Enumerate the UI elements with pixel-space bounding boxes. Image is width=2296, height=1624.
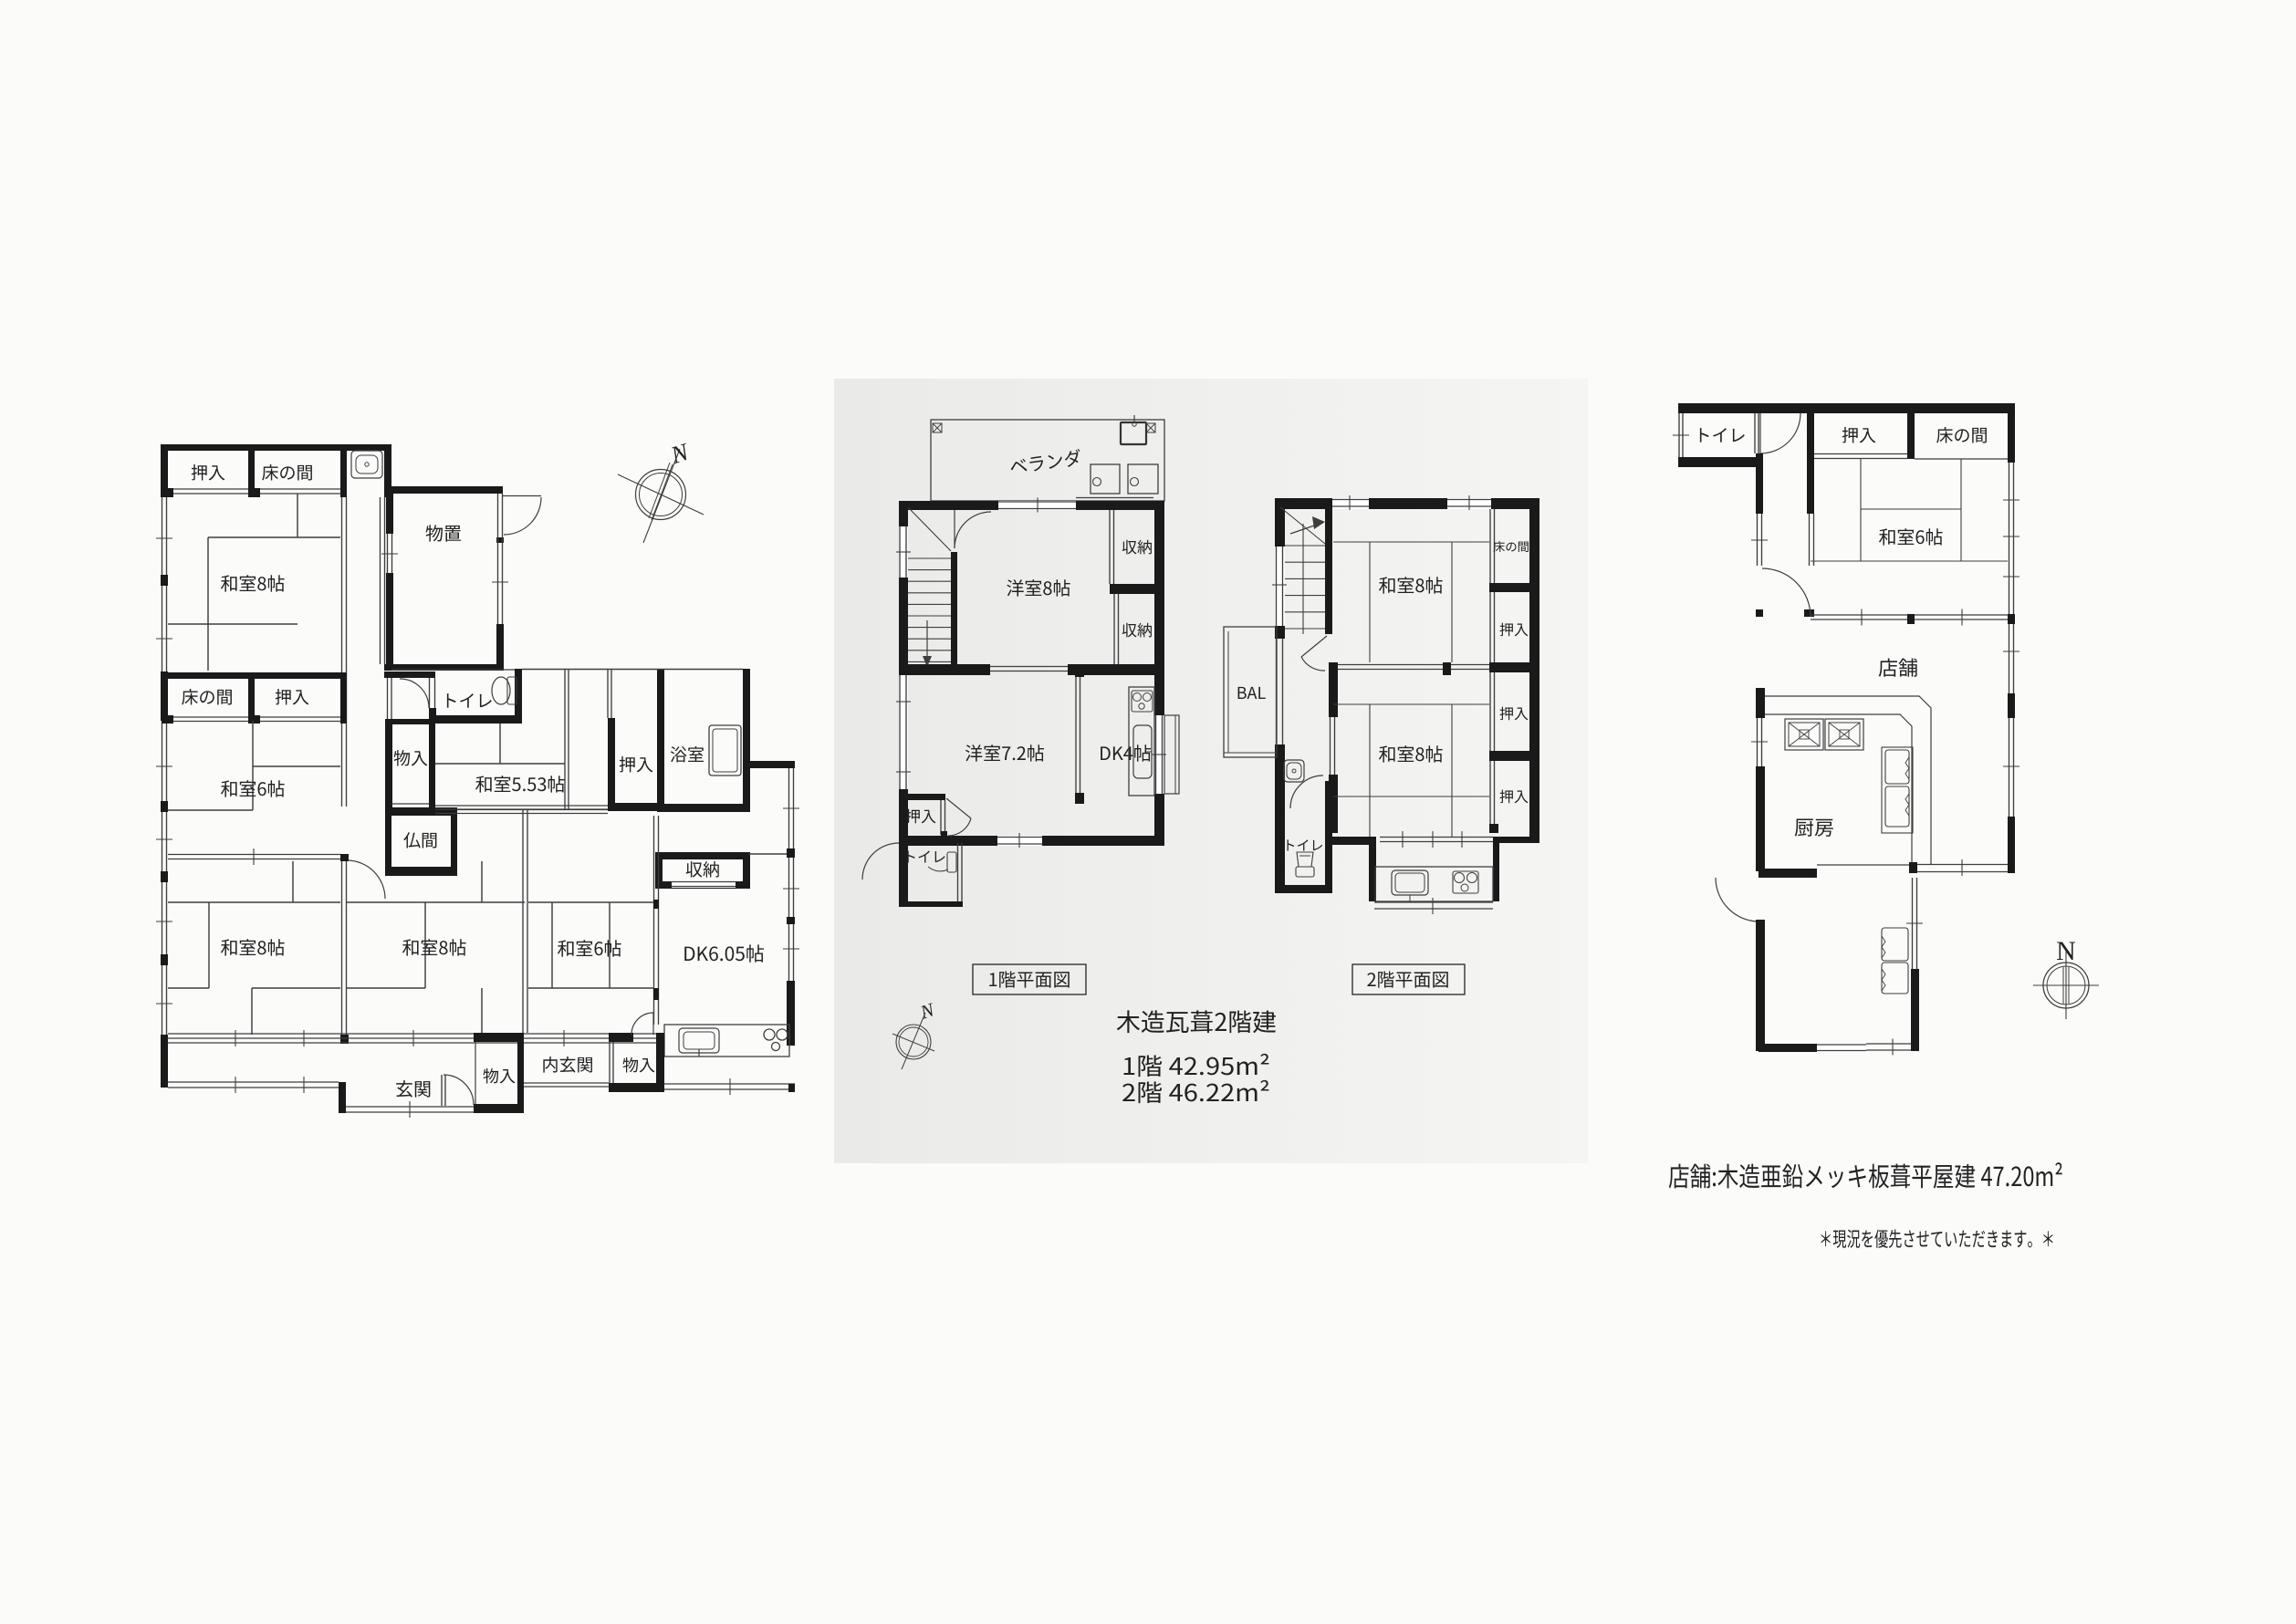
svg-text:和室8帖: 和室8帖: [220, 933, 285, 960]
svg-text:和室6帖: 和室6帖: [220, 775, 285, 801]
svg-text:BAL: BAL: [1237, 681, 1267, 704]
svg-text:DK6.05帖: DK6.05帖: [683, 940, 765, 967]
svg-text:和室8帖: 和室8帖: [1378, 571, 1443, 598]
svg-text:DK4帖: DK4帖: [1099, 739, 1152, 765]
svg-text:トイレ: トイレ: [1694, 422, 1746, 447]
svg-text:2階 46.22m²: 2階 46.22m²: [1122, 1075, 1270, 1109]
svg-text:トイレ: トイレ: [903, 845, 946, 867]
svg-text:玄関: 玄関: [395, 1075, 432, 1101]
svg-text:床の間: 床の間: [181, 684, 233, 709]
svg-text:押入: 押入: [275, 684, 309, 709]
svg-text:1階平面図: 1階平面図: [987, 965, 1070, 992]
svg-text:物入: 物入: [393, 745, 428, 770]
svg-text:トイレ: トイレ: [441, 688, 493, 713]
svg-text:押入: 押入: [1499, 785, 1529, 807]
svg-text:押入: 押入: [191, 460, 225, 484]
svg-text:浴室: 浴室: [670, 742, 704, 766]
svg-text:押入: 押入: [1499, 618, 1529, 640]
svg-text:床の間: 床の間: [261, 460, 313, 484]
svg-text:N: N: [2056, 936, 2076, 966]
svg-text:和室8帖: 和室8帖: [402, 933, 466, 960]
svg-text:和室8帖: 和室8帖: [220, 569, 285, 596]
svg-text:店舗:木造亜鉛メッキ板葺平屋建 47.20m²: 店舗:木造亜鉛メッキ板葺平屋建 47.20m²: [1668, 1156, 2063, 1194]
svg-text:木造瓦葺2階建: 木造瓦葺2階建: [1116, 1003, 1277, 1038]
svg-text:収納: 収納: [685, 857, 720, 881]
svg-text:押入: 押入: [905, 804, 936, 827]
svg-text:収納: 収納: [1122, 618, 1153, 640]
svg-text:内玄関: 内玄関: [541, 1052, 593, 1077]
svg-text:洋室7.2帖: 洋室7.2帖: [965, 739, 1045, 765]
svg-text:床の間: 床の間: [1936, 422, 1988, 447]
svg-text:和室6帖: 和室6帖: [1878, 523, 1943, 549]
svg-text:収納: 収納: [1122, 535, 1153, 557]
svg-text:物置: 物置: [425, 519, 462, 546]
svg-text:和室5.53帖: 和室5.53帖: [475, 770, 566, 796]
svg-text:物入: 物入: [622, 1053, 655, 1077]
svg-text:押入: 押入: [619, 752, 653, 776]
svg-text:洋室8帖: 洋室8帖: [1006, 574, 1070, 600]
svg-text:和室8帖: 和室8帖: [1378, 740, 1443, 766]
svg-text:仏間: 仏間: [403, 828, 438, 852]
svg-text:＊現況を優先させていただきます。＊: ＊現況を優先させていただきます。＊: [1819, 1223, 2055, 1253]
svg-text:床の間: 床の間: [1493, 537, 1529, 555]
svg-text:厨房: 厨房: [1794, 812, 1834, 841]
svg-text:押入: 押入: [1842, 422, 1876, 447]
svg-text:店舗: 店舗: [1878, 652, 1918, 682]
svg-text:物入: 物入: [483, 1064, 516, 1088]
svg-text:押入: 押入: [1499, 702, 1529, 724]
svg-text:和室6帖: 和室6帖: [557, 934, 621, 961]
svg-text:2階平面図: 2階平面図: [1366, 965, 1449, 992]
